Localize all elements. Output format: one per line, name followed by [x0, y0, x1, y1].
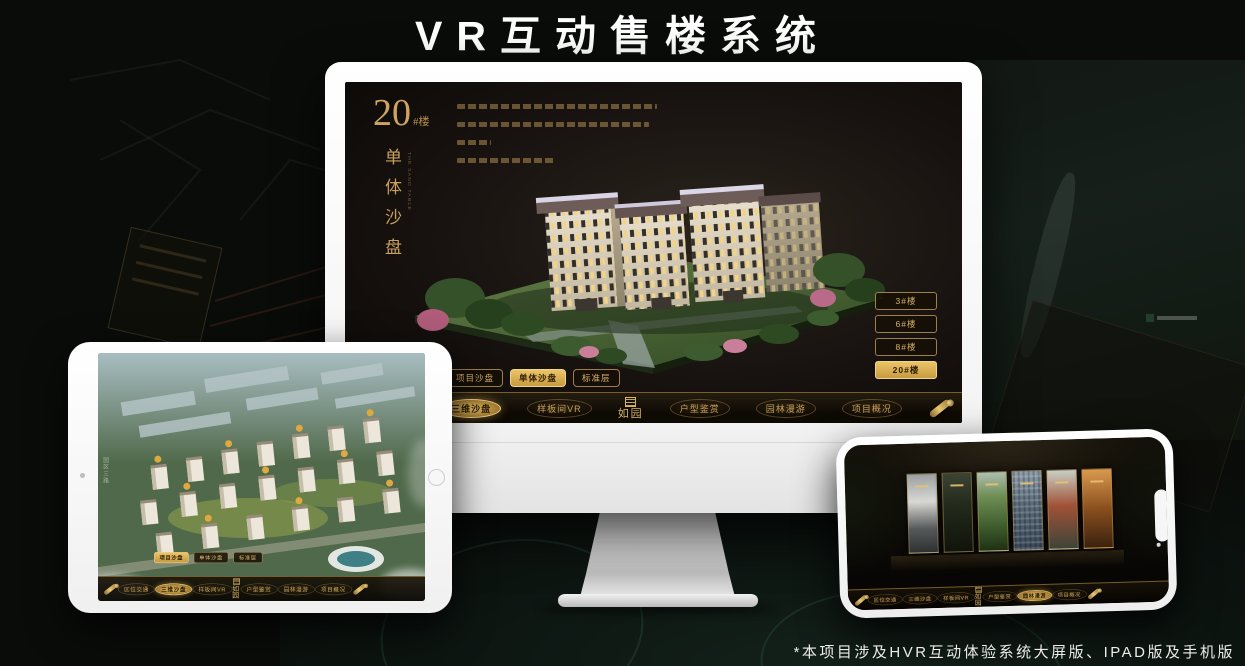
building-3d-viewport[interactable] [403, 148, 903, 396]
nav-item-showroom-vr[interactable]: 样板间VR [192, 583, 232, 595]
gallery-panel[interactable] [977, 471, 1009, 552]
brand-logo: 如园 [618, 397, 644, 420]
block-suffix: #楼 [413, 116, 430, 128]
description-line [457, 122, 649, 127]
building-button[interactable]: 3#楼 [875, 292, 937, 310]
view-tabs: 项目沙盘 单体沙盘 标准层 [447, 369, 620, 387]
gallery-panel[interactable] [1012, 470, 1044, 551]
building-selector: 3#楼 6#楼 8#楼 20#楼 [875, 292, 937, 379]
tablet-camera-icon [80, 473, 85, 478]
tab-standard-floor[interactable]: 标准层 [233, 552, 262, 563]
nav-item-location[interactable]: 区位交通 [868, 593, 903, 605]
building-button[interactable]: 8#楼 [875, 338, 937, 356]
gallery-panel[interactable] [1047, 469, 1079, 550]
tablet-frame: 园区三路 项目沙盘 单体沙盘 标准层 区位交通 三维沙盘 样板间VR 如园 户型… [68, 342, 452, 613]
nav-item-floorplans[interactable]: 户型鉴赏 [982, 590, 1017, 602]
tab-single-sandbox[interactable]: 单体沙盘 [510, 369, 566, 387]
description-line [457, 140, 491, 145]
seal-icon [975, 587, 982, 593]
scroll-menu-icon[interactable] [928, 398, 951, 418]
nav-item-showroom-vr[interactable]: 样板间VR [527, 399, 592, 418]
monitor-stand-neck [580, 511, 735, 597]
stage: VR互动售楼系统 20#楼 单体沙盘 THE SAND TABLE [0, 0, 1245, 666]
masterplan-3d-viewport[interactable] [98, 353, 425, 601]
nav-item-location[interactable]: 区位交通 [118, 583, 155, 595]
gallery-panel[interactable] [907, 473, 939, 554]
background-logo-tag [1146, 314, 1200, 322]
page-title: VR互动售楼系统 [0, 2, 1245, 62]
seal-icon [625, 397, 636, 407]
building-button-selected[interactable]: 20#楼 [875, 361, 937, 379]
nav-item-overview[interactable]: 项目概况 [1052, 588, 1087, 600]
phone-camera-icon [1157, 542, 1161, 546]
tab-single-sandbox[interactable]: 单体沙盘 [194, 552, 229, 563]
brand-logo: 如园 [232, 578, 240, 599]
nav-item-overview[interactable]: 项目概况 [315, 583, 352, 595]
seal-icon [233, 578, 240, 584]
description-line [457, 104, 657, 109]
scroll-menu-icon[interactable] [352, 583, 366, 596]
phone-frame: 区位交通 三维沙盘 样板间VR 如园 户型鉴赏 园林漫游 项目概况 [836, 428, 1178, 618]
tablet-nav-bar: 区位交通 三维沙盘 样板间VR 如园 户型鉴赏 园林漫游 项目概况 [98, 576, 425, 601]
nav-item-overview[interactable]: 项目概况 [842, 399, 902, 418]
nav-item-garden-roam[interactable]: 园林漫游 [278, 583, 315, 595]
nav-item-3d-sandbox[interactable]: 三维沙盘 [902, 592, 937, 604]
tablet-screen: 园区三路 项目沙盘 单体沙盘 标准层 区位交通 三维沙盘 样板间VR 如园 户型… [98, 353, 425, 601]
tab-project-sandbox[interactable]: 项目沙盘 [154, 552, 189, 563]
nav-item-garden-roam[interactable]: 园林漫游 [756, 399, 816, 418]
road-label: 园区三路 [102, 457, 110, 484]
gallery-panel[interactable] [942, 472, 974, 553]
block-heading: 20#楼 [373, 94, 430, 132]
brand-logo: 如园 [975, 587, 983, 607]
tablet-home-button[interactable] [428, 469, 445, 486]
building-button[interactable]: 6#楼 [875, 315, 937, 333]
tab-project-sandbox[interactable]: 项目沙盘 [447, 369, 503, 387]
nav-item-3d-sandbox[interactable]: 三维沙盘 [155, 583, 192, 595]
footnote: *本项目涉及HVR互动体验系统大屏版、IPAD版及手机版 [794, 641, 1235, 662]
tab-standard-floor[interactable]: 标准层 [573, 369, 620, 387]
nav-item-garden-roam[interactable]: 园林漫游 [1017, 589, 1052, 601]
nav-item-floorplans[interactable]: 户型鉴赏 [670, 399, 730, 418]
nav-item-floorplans[interactable]: 户型鉴赏 [240, 583, 277, 595]
block-number: 20 [373, 92, 411, 134]
scroll-menu-icon[interactable] [103, 583, 117, 596]
scene-gallery [907, 468, 1114, 554]
phone-nav-bar: 区位交通 三维沙盘 样板间VR 如园 户型鉴赏 园林漫游 项目概况 [848, 580, 1169, 610]
monitor-stand-base [558, 594, 758, 607]
phone-notch [1154, 489, 1169, 541]
scroll-menu-icon[interactable] [854, 594, 867, 606]
block-subtitle: 单体沙盘 [379, 148, 404, 268]
phone-screen: 区位交通 三维沙盘 样板间VR 如园 户型鉴赏 园林漫游 项目概况 [844, 437, 1169, 611]
gallery-panel[interactable] [1082, 468, 1114, 549]
nav-item-showroom-vr[interactable]: 样板间VR [937, 591, 975, 603]
tablet-view-tabs: 项目沙盘 单体沙盘 标准层 [154, 552, 315, 563]
scroll-menu-icon[interactable] [1087, 588, 1100, 600]
